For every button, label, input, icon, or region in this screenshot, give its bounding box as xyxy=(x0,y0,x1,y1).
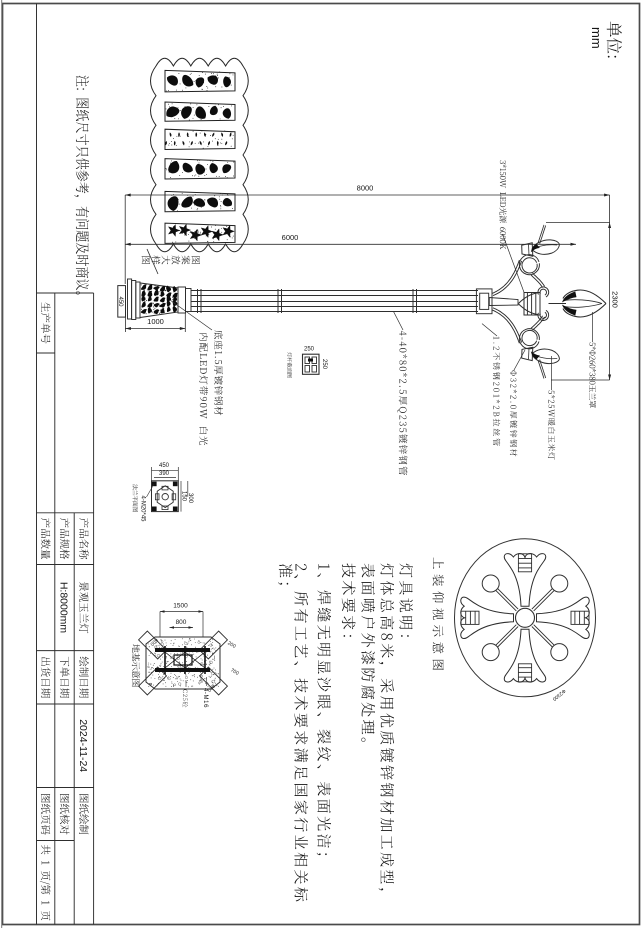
svg-text:150: 150 xyxy=(181,491,187,502)
svg-text:300: 300 xyxy=(187,493,193,504)
svg-text:450: 450 xyxy=(117,296,123,307)
svg-text:4-M16: 4-M16 xyxy=(202,688,208,708)
svg-text:8000: 8000 xyxy=(357,184,374,193)
svg-text:1500: 1500 xyxy=(173,603,188,610)
svg-text:250: 250 xyxy=(321,359,327,370)
svg-text:250: 250 xyxy=(304,347,315,353)
svg-text:390: 390 xyxy=(159,471,170,477)
svg-text:mm: mm xyxy=(589,27,604,49)
svg-text:2024-11-24: 2024-11-24 xyxy=(77,719,89,772)
svg-text:6000: 6000 xyxy=(282,233,299,242)
svg-text:4-M20*45: 4-M20*45 xyxy=(140,496,146,523)
svg-text:450: 450 xyxy=(159,463,170,469)
svg-text:H:8000mm: H:8000mm xyxy=(58,582,70,634)
svg-text:700: 700 xyxy=(229,667,239,676)
svg-text:1000: 1000 xyxy=(147,317,164,326)
svg-text:800: 800 xyxy=(176,619,187,626)
svg-text:2300: 2300 xyxy=(611,291,620,308)
svg-text:200: 200 xyxy=(226,640,236,649)
